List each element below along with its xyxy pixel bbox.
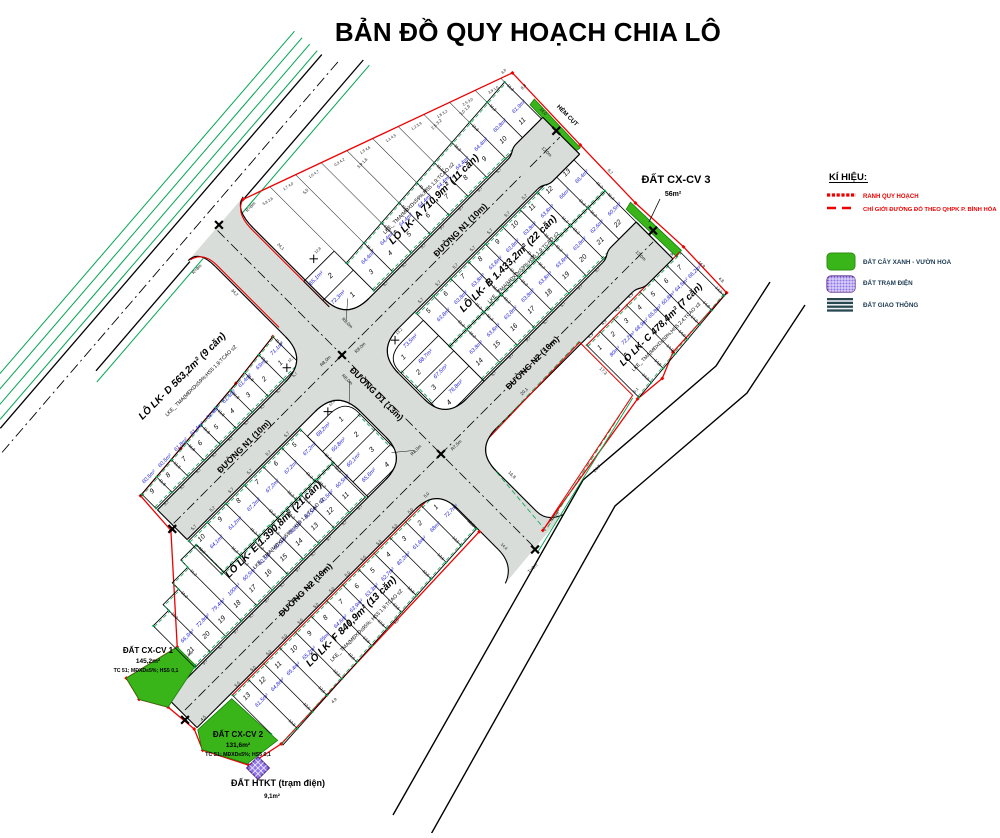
svg-text:BẢN ĐỒ QUY HOẠCH CHIA LÔ: BẢN ĐỒ QUY HOẠCH CHIA LÔ bbox=[335, 17, 721, 47]
svg-text:ĐẤT CX-CV 1: ĐẤT CX-CV 1 bbox=[123, 645, 174, 655]
svg-text:131,6m²: 131,6m² bbox=[226, 742, 251, 749]
svg-text:ĐẤT CX-CV 2: ĐẤT CX-CV 2 bbox=[213, 729, 264, 739]
svg-text:9,1m²: 9,1m² bbox=[264, 793, 280, 800]
svg-text:TC S1; MĐXD≤5%; HS5 0,1: TC S1; MĐXD≤5%; HS5 0,1 bbox=[205, 752, 271, 758]
svg-text:CHỈ GIỚI ĐƯỜNG ĐỎ THEO QHPK P.: CHỈ GIỚI ĐƯỜNG ĐỎ THEO QHPK P. BÌNH HÒA bbox=[863, 205, 997, 213]
svg-text:TC 51; MĐXD≤5%; HS5 0,1: TC 51; MĐXD≤5%; HS5 0,1 bbox=[114, 668, 179, 674]
svg-text:ĐẤT HTKT (trạm điện): ĐẤT HTKT (trạm điện) bbox=[231, 778, 325, 788]
svg-text:KÍ HIỆU:: KÍ HIỆU: bbox=[829, 171, 867, 183]
svg-text:56m²: 56m² bbox=[665, 191, 682, 198]
svg-text:ĐẤT CX-CV 3: ĐẤT CX-CV 3 bbox=[641, 173, 710, 186]
svg-text:145,2m²: 145,2m² bbox=[136, 658, 161, 665]
svg-text:RANH QUY HOẠCH: RANH QUY HOẠCH bbox=[863, 194, 919, 200]
